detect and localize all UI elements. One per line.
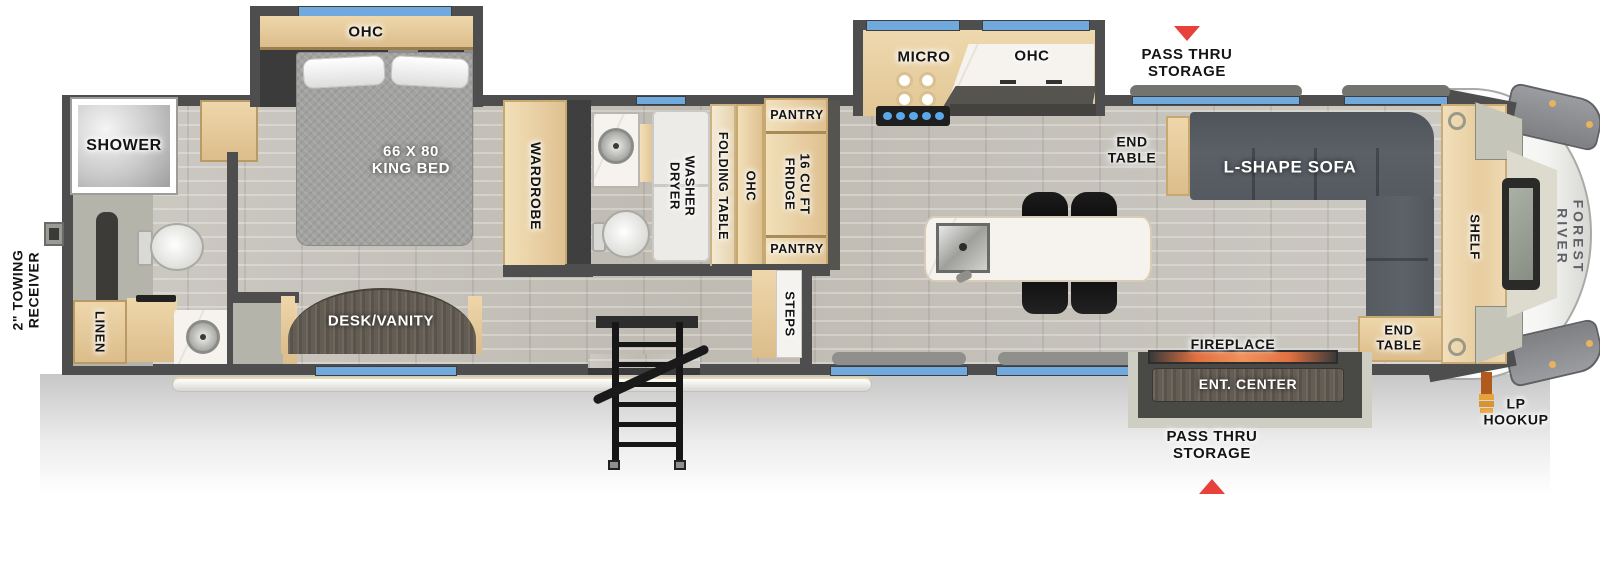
kitchen-slide-window: [866, 20, 960, 31]
range-knob: [896, 112, 905, 120]
entry-steps-rung: [612, 442, 683, 447]
entry-steps-rung: [612, 342, 683, 347]
sofa-seam: [1366, 258, 1428, 261]
bedroom-slide-corner: [260, 50, 300, 107]
sofa-chaise-section: [1366, 196, 1434, 326]
mid-bath-window: [636, 96, 686, 105]
pantry-top-label: PANTRY: [770, 108, 824, 122]
entry-steps-rung: [612, 422, 683, 427]
lp-hookup-label: LP HOOKUP: [1483, 396, 1548, 427]
pillow: [302, 55, 385, 89]
bath-counter: [127, 298, 177, 362]
entry-steps-handrail: [592, 344, 710, 405]
sofa-label: L-SHAPE SOFA: [1224, 157, 1357, 176]
steps-label: STEPS: [782, 291, 797, 337]
end-table-kitchen: [1166, 116, 1190, 196]
cooktop-burner: [919, 72, 936, 89]
pass-thru-top-label: PASS THRU STORAGE: [1142, 47, 1233, 81]
kitchen-faucet-icon: [1046, 80, 1062, 84]
living-window: [1344, 96, 1448, 105]
window-valance: [832, 352, 966, 365]
brand-label: FOREST RIVER: [1554, 200, 1585, 275]
floorplan: FOREST RIVER SHOWER LINEN OHC 66 X 80 KI…: [0, 0, 1600, 568]
window-valance: [998, 352, 1136, 365]
sofa-long-section: [1190, 112, 1434, 200]
sofa-seam: [1376, 148, 1379, 200]
galley-wall: [828, 100, 840, 270]
shelf-label: SHELF: [1467, 214, 1482, 260]
counter-lip: [950, 104, 1096, 116]
mid-ohc-label: OHC: [743, 171, 758, 202]
entry-steps: [588, 312, 718, 468]
micro-label: MICRO: [898, 50, 951, 67]
mid-bath-wall: [565, 264, 715, 276]
entry-steps-foot: [608, 460, 620, 470]
desk-vanity-label: DESK/VANITY: [328, 314, 434, 331]
marker-light: [1586, 121, 1593, 128]
pass-thru-arrow-top: [1174, 26, 1200, 41]
folding-table-label: FOLDING TABLE: [716, 132, 730, 240]
living-window: [996, 366, 1136, 376]
range-knob: [909, 112, 918, 120]
wardrobe-back-wall: [567, 100, 591, 272]
pantry-divider: [766, 131, 826, 134]
living-window: [1132, 96, 1300, 105]
tv-screen: [1509, 188, 1533, 280]
kitchen-slide-window: [982, 20, 1090, 31]
living-window: [830, 366, 968, 376]
interior-steps: [752, 270, 776, 358]
pass-thru-arrow-bottom: [1199, 479, 1225, 494]
bedroom-cabinet: [233, 303, 283, 364]
entry-steps-rung: [612, 402, 683, 407]
washer-dryer-label: WASHER DRYER: [667, 156, 696, 217]
towing-receiver-label: 2" TOWING RECEIVER: [10, 249, 41, 330]
range-knob: [883, 112, 892, 120]
range-knob: [935, 112, 944, 120]
kitchen-ohc-label: OHC: [1014, 49, 1049, 66]
toilet-icon: [602, 210, 650, 258]
bath-sink-drain: [200, 334, 206, 340]
pantry-bottom-label: PANTRY: [770, 242, 824, 256]
toilet-icon: [150, 223, 204, 271]
pantry-divider: [766, 235, 826, 238]
end-table-kitchen-label: END TABLE: [1108, 134, 1157, 165]
shelf-grommet: [1448, 338, 1466, 356]
marker-light: [1549, 361, 1556, 368]
kitchen-faucet-icon: [1000, 80, 1016, 84]
shelf-grommet: [1448, 112, 1466, 130]
shower-label: SHOWER: [86, 137, 162, 155]
fridge-label: 16 CU FT FRIDGE: [782, 153, 811, 214]
ent-center-label: ENT. CENTER: [1199, 377, 1297, 393]
pillow: [390, 55, 469, 89]
range-knob: [922, 112, 931, 120]
bedroom-ohc-label: OHC: [348, 25, 383, 42]
wardrobe-label: WARDROBE: [527, 142, 543, 230]
entry-steps-foot: [674, 460, 686, 470]
lp-hookup-pipe: [1481, 372, 1492, 396]
marker-light: [1586, 340, 1593, 347]
towing-receiver-hitch-opening: [49, 228, 59, 240]
awning-tube: [172, 377, 872, 392]
end-table-front-label: END TABLE: [1376, 323, 1421, 352]
bath-faucet-icon: [136, 295, 176, 302]
bed-label: 66 X 80 KING BED: [372, 144, 450, 178]
marker-light: [1549, 100, 1556, 107]
island-sink-drain: [959, 243, 967, 251]
cooktop-burner: [896, 72, 913, 89]
fireplace-label: FIREPLACE: [1191, 337, 1276, 353]
bedroom-window: [315, 366, 457, 376]
linen-label: LINEN: [92, 311, 107, 353]
pass-thru-bottom-label: PASS THRU STORAGE: [1167, 429, 1258, 463]
mid-bath-sink-drain: [613, 143, 619, 149]
